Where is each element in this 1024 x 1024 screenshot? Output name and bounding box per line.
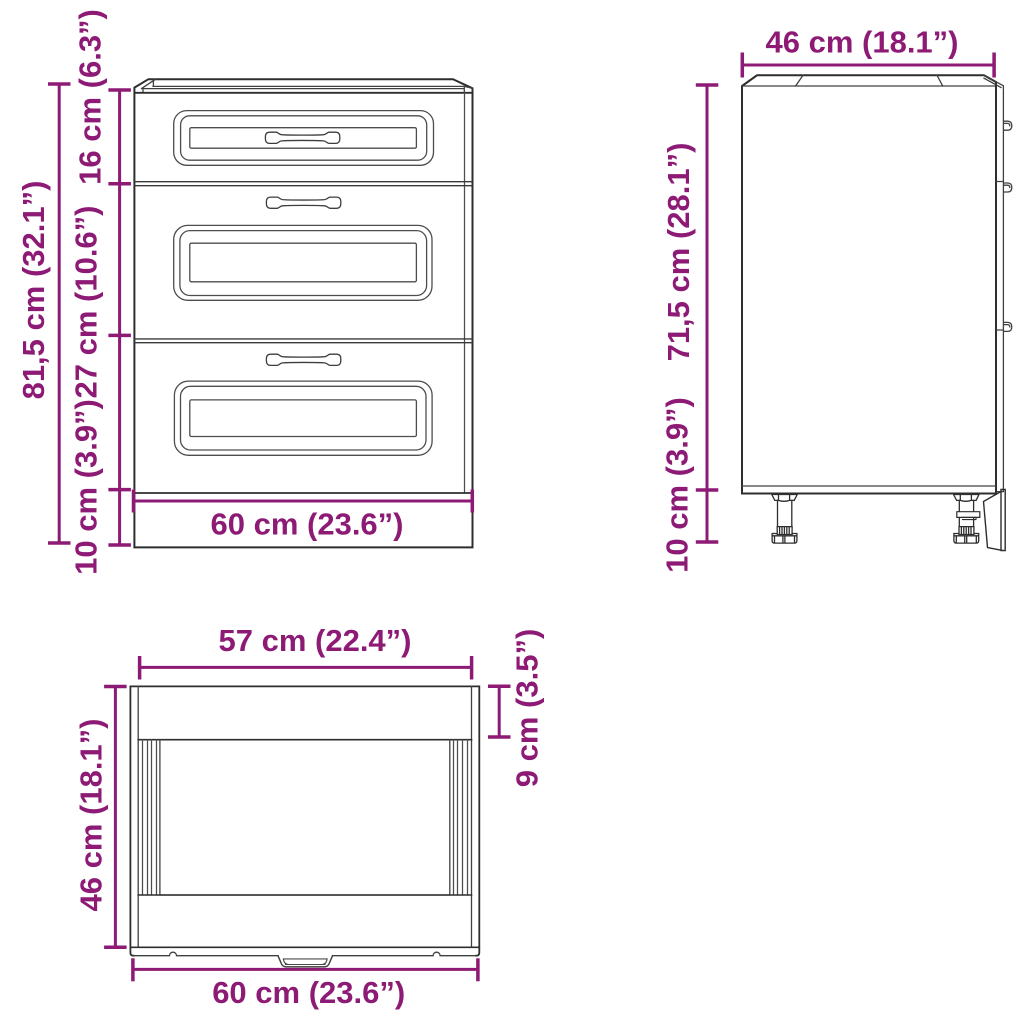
svg-text:60 cm (23.6”): 60 cm (23.6”): [212, 975, 405, 1010]
svg-text:27 cm (10.6”): 27 cm (10.6”): [69, 206, 104, 399]
svg-text:46 cm (18.1”): 46 cm (18.1”): [766, 25, 959, 60]
svg-text:81,5 cm (32.1”): 81,5 cm (32.1”): [16, 181, 51, 400]
svg-text:46 cm (18.1”): 46 cm (18.1”): [74, 719, 109, 912]
svg-text:57 cm (22.4”): 57 cm (22.4”): [219, 623, 412, 658]
svg-text:60 cm (23.6”): 60 cm (23.6”): [211, 507, 404, 542]
svg-text:71,5 cm (28.1”): 71,5 cm (28.1”): [661, 143, 696, 362]
svg-text:9 cm (3.5”): 9 cm (3.5”): [510, 629, 545, 788]
svg-text:10 cm (3.9”): 10 cm (3.9”): [69, 399, 104, 575]
svg-text:10 cm (3.9”): 10 cm (3.9”): [660, 397, 695, 573]
svg-text:16 cm (6.3”): 16 cm (6.3”): [73, 9, 108, 185]
